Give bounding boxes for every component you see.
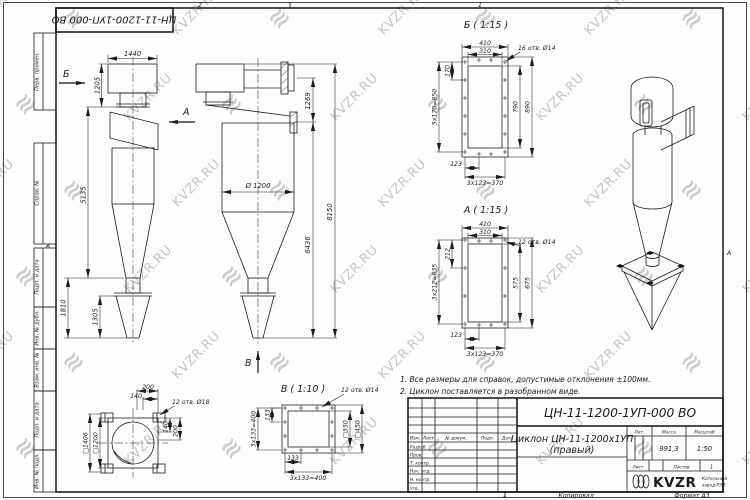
dim-v-pitch-left: 133 — [265, 409, 272, 421]
dim-side-mid: 6436 — [304, 236, 312, 254]
dim-b-pitch: 170 — [445, 65, 452, 77]
view-arrow-v-label: В — [245, 358, 252, 369]
dim-a-pitch-total: 3х212=635 — [432, 264, 439, 300]
company-logo: KVZR Котельный завод РЭП — [633, 475, 727, 491]
mass-label: Масса — [662, 430, 676, 436]
lit-label: Лит. — [634, 430, 645, 436]
dim-front-width: 1440 — [124, 50, 141, 58]
sheets-count: 1 — [710, 465, 713, 471]
detail-b-holes-note: 16 отв. Ø14 — [518, 44, 556, 52]
view-arrow-a-label: А — [182, 107, 190, 118]
dim-b-pitch-total: 5х170=850 — [432, 89, 439, 125]
note-2: 2. Циклон поставляется в разобранном вид… — [400, 387, 580, 396]
dim-b-inner-h: 790 — [513, 101, 520, 113]
sheet-label: Лист — [632, 465, 644, 471]
dim-side-flange: 1269 — [304, 92, 312, 109]
row-tkontr: Т. контр. — [410, 461, 430, 467]
plan-view: 200 140 12 отв. Ø18 140 200 □1406 □1200 — [83, 384, 210, 478]
strip-perv-primen: Перв. примен. — [35, 52, 41, 91]
dim-front-cone-h: 1305 — [92, 308, 100, 325]
row-nachotd: Нач. отд. — [410, 469, 431, 475]
detail-v-view: В ( 1:10 ) 12 отв. Ø14 133 3х133=400 133… — [251, 384, 379, 482]
dim-plan-200-right: 200 — [173, 425, 180, 437]
scale-value: 1:50 — [697, 445, 712, 453]
detail-b-view: Б ( 1:15 ) 410 310 16 отв. Ø14 170 5х170… — [432, 20, 556, 187]
sheets-label: Листов — [672, 465, 690, 471]
dim-b-bottom-pitch: 123 — [450, 161, 462, 168]
sheet-frame: ЦН-11-1200-1УП-000 ВО 2 1 1 А А Копирова… — [4, 2, 747, 500]
logo-coil-icon — [633, 475, 649, 488]
dim-b-outer-w: 410 — [479, 40, 491, 47]
dim-front-body-h: 5135 — [80, 186, 88, 203]
dim-side-total: 8150 — [326, 203, 334, 220]
row-nkontr: Н. контр. — [410, 477, 431, 483]
iso-view — [616, 77, 694, 330]
row-razrab: Разраб. — [410, 445, 427, 451]
dim-v-total-bottom: 3х133=400 — [290, 475, 326, 482]
dim-v-pitch-bottom: 133 — [287, 455, 299, 462]
product-title-line1: Циклон ЦН-11-1200х1УП — [511, 434, 634, 445]
dim-a-inner-w: 310 — [479, 229, 491, 236]
dim-a-bottom-pitch: 123 — [450, 332, 462, 339]
dim-a-inner-h: 575 — [513, 277, 520, 289]
note-1: 1. Все размеры для справок, допустимые о… — [400, 375, 650, 384]
detail-a-title: А ( 1:15 ) — [463, 205, 508, 216]
title-block: Изм. Лист № докум. Подп. Дата Разраб. Пр… — [408, 398, 727, 492]
strip-podp-data-2: Подп. и дата — [35, 402, 41, 437]
strip-vzam-inv: Взам. инв. № — [35, 352, 41, 387]
dim-v-square-outer: □450 — [355, 420, 362, 438]
logo-subtext-1: Котельный — [702, 476, 727, 482]
logo-text: KVZR — [653, 475, 697, 491]
doc-number-top: ЦН-11-1200-1УП-000 ВО — [51, 14, 176, 25]
dim-front-bottom-h: 1810 — [60, 299, 68, 316]
zone-top-2: 2 — [198, 2, 202, 9]
zone-right-a: А — [726, 250, 731, 257]
scale-label: Масштаб — [694, 430, 715, 436]
drawing-canvas: ЦН-11-1200-1УП-000 ВО 2 1 1 А А Копирова… — [0, 0, 750, 500]
dim-plan-square-inner: □1200 — [93, 432, 100, 454]
logo-subtext-2: завод РЭП — [702, 483, 726, 489]
row-prov: Пров. — [410, 453, 423, 459]
front-view: 1440 1205 5135 1810 1305 Б А — [59, 50, 195, 345]
mass-value: 991,3 — [659, 445, 678, 453]
view-arrow-b-label: Б — [63, 69, 70, 80]
dim-plan-200-top: 200 — [142, 384, 154, 391]
col-izm: Изм. — [410, 436, 420, 442]
col-podp: Подп. — [481, 436, 494, 442]
dim-plan-140-top: 140 — [130, 393, 142, 400]
doc-number-main: ЦН-11-1200-1УП-000 ВО — [544, 406, 697, 420]
strip-podp-data-1: Подп. и дата — [35, 259, 41, 294]
detail-v-title: В ( 1:10 ) — [281, 384, 325, 395]
plan-holes-note: 12 отв. Ø18 — [172, 398, 210, 406]
detail-a-view: А ( 1:15 ) 410 310 12 отв. Ø14 212 3х212… — [432, 205, 556, 358]
strip-inv-podl: Инв. № подл. — [35, 453, 41, 489]
format-label: Формат А3 — [674, 493, 709, 500]
detail-b-title: Б ( 1:15 ) — [464, 20, 508, 31]
dim-a-outer-w: 410 — [479, 221, 491, 228]
drawing-sheet: KVZR.RU≋KVZR.RU≋KVZR.RU≋KVZR.RU≋≋KVZR.RU… — [0, 0, 750, 500]
dim-side-diameter: Ø 1200 — [245, 182, 271, 190]
detail-a-holes-note: 12 отв. Ø14 — [518, 238, 556, 246]
row-utv: Утв. — [410, 486, 419, 492]
dim-a-bottom-total: 3х123=370 — [467, 351, 503, 358]
detail-b-bolt-holes — [463, 58, 507, 156]
product-title-line2: (правый) — [550, 445, 595, 456]
strip-inv-dubl: Инв. № дубл. — [35, 310, 41, 346]
col-docnum: № докум. — [444, 436, 466, 442]
dim-plan-square-outer: □1406 — [83, 432, 90, 454]
dim-v-square-inner: □350 — [343, 420, 350, 438]
dim-front-outlet-h: 1205 — [94, 77, 102, 94]
side-view: Ø 1200 1269 6436 8150 В — [196, 58, 337, 373]
zone-top-1: 1 — [478, 2, 482, 9]
dim-b-inner-w: 310 — [479, 48, 491, 55]
dim-plan-140-right: 140 — [163, 421, 170, 433]
notes: 1. Все размеры для справок, допустимые о… — [400, 375, 650, 396]
detail-a-bolt-holes — [463, 238, 507, 327]
dim-b-bottom-total: 3х123=370 — [467, 180, 503, 187]
side-strip: Перв. примен. Справ. № Подп. и дата Инв.… — [34, 33, 56, 492]
dim-b-outer-h: 890 — [525, 101, 532, 113]
copied-label: Копировал — [558, 493, 593, 500]
dim-a-outer-h: 675 — [525, 277, 532, 289]
dim-a-pitch: 212 — [445, 248, 452, 260]
col-list: Лист — [422, 436, 434, 442]
strip-sprav-no: Справ. № — [35, 180, 41, 205]
detail-v-bolt-holes — [283, 406, 334, 452]
dim-v-total-left: 3х133=400 — [251, 411, 258, 447]
detail-v-holes-note: 12 отв. Ø14 — [341, 386, 379, 394]
